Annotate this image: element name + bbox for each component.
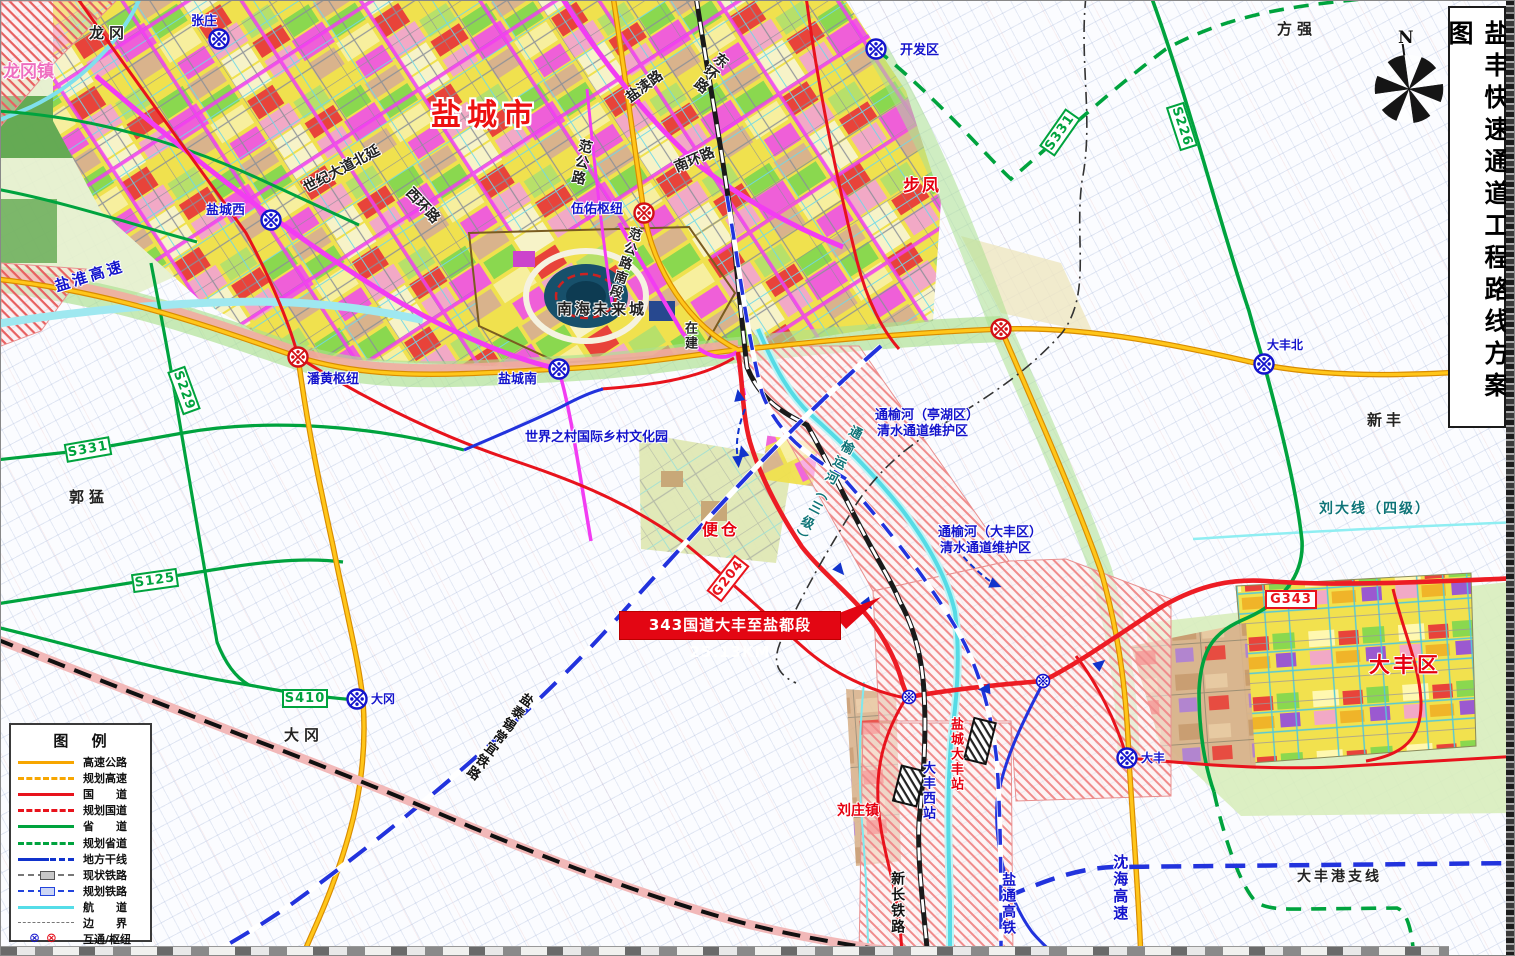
legend-label: 地方干线 (83, 851, 127, 867)
zone-label-tongyu-dafeng-2: 清水通道维护区 (940, 542, 1031, 557)
legend-row-planned-railway: 规划铁路 (11, 883, 150, 899)
legend-row-planned-expressway: 规划高速 (11, 770, 150, 786)
rail-label-dafenggang-branch: 大丰港支线 (1297, 869, 1382, 885)
legend-row-boundary: 边 界 (11, 915, 150, 931)
compass-north-label: N (1398, 29, 1414, 49)
map-title-block: 盐丰快速通道工程路线方案图 (1448, 6, 1506, 428)
legend-swatch-interchange-icons: ⊗⊗ (18, 934, 74, 944)
area-label-world-village: 世界之村国际乡村文化园 (525, 431, 668, 446)
shield-g343: G343 (1265, 590, 1317, 609)
legend-row-local-trunk: 地方干线 (11, 851, 150, 867)
legend-row-provincial-road: 省 道 (11, 818, 150, 834)
station-label-dafeng-west: 大丰西站 (919, 761, 934, 821)
legend-swatch-boundary (18, 918, 74, 928)
map-edge-strip (1, 946, 1449, 956)
map-graphic (1, 1, 1515, 956)
legend-row-planned-national-road: 规划国道 (11, 802, 150, 818)
station-label-yancheng-dafeng: 盐城大丰站 (947, 717, 962, 792)
area-label-nanhai: 南海未来城 (557, 301, 647, 318)
interchange-icon: ⊗ (29, 931, 46, 946)
dafeng-urban-area (1131, 573, 1515, 816)
zone-label-tongyu-dafeng-1: 通榆河（大丰区） (938, 526, 1042, 541)
legend-swatch-planned-provincial-road (18, 838, 74, 848)
ic-label-kaifaqu: 开发区 (900, 44, 939, 59)
rail-label-xinchang: 新长铁路 (889, 871, 905, 935)
town-label-bufeng: 步凤 (903, 177, 941, 197)
legend-label: 边 界 (83, 915, 127, 931)
legend-row-interchange: ⊗⊗ 互通/枢纽 (11, 931, 150, 947)
town-label-longgang-town: 龙冈镇 (3, 63, 54, 83)
town-label-fangqiang: 方强 (1277, 21, 1317, 38)
city-label-yancheng: 盐城市 (431, 99, 539, 134)
legend-label: 规划铁路 (83, 883, 127, 899)
town-label-longgang: 龙冈 (89, 25, 129, 42)
legend-label: 互通/枢纽 (83, 931, 131, 947)
legend-title: 图 例 (19, 730, 150, 751)
shield-s410: S410 (282, 689, 328, 708)
zone-label-tongyu-tinghu-2: 清水通道维护区 (877, 425, 968, 440)
legend-label: 省 道 (83, 818, 127, 834)
hub-icon: ⊗ (46, 931, 63, 946)
town-label-guomeng: 郭猛 (69, 489, 109, 506)
rail-label-yantong: 盐通高铁 (1000, 872, 1016, 936)
ic-label-zhangzhuang: 张庄 (191, 15, 217, 30)
legend-swatch-existing-railway (18, 870, 74, 880)
ic-label-dafeng: 大丰 (1141, 752, 1165, 766)
ic-label-yancheng-west: 盐城西 (206, 204, 245, 219)
expwy-label-shenhai: 沈海高速 (1111, 854, 1128, 922)
ic-label-dafeng-north: 大丰北 (1267, 339, 1303, 353)
label-under-construction: 在建 (681, 321, 696, 351)
legend-row-national-road: 国 道 (11, 786, 150, 802)
town-label-xinfeng: 新丰 (1367, 412, 1405, 429)
decorative-border-strip (1506, 1, 1515, 956)
map-canvas: 盐城市 大丰区 龙冈 龙冈镇 张庄 盐城西 伍佑枢纽 潘黄枢纽 盐城南 开发区 … (0, 0, 1515, 956)
district-label-dafeng: 大丰区 (1369, 653, 1441, 677)
legend-swatch-provincial-road (18, 821, 74, 831)
legend-row-planned-provincial-road: 规划省道 (11, 834, 150, 850)
legend-swatch-national-road (18, 789, 74, 799)
legend-swatch-planned-national-road (18, 805, 74, 815)
legend-row-expressway: 高速公路 (11, 754, 150, 770)
legend-swatch-planned-expressway (18, 773, 74, 783)
road-label-liuda-line: 刘大线（四级） (1319, 501, 1431, 517)
legend-label: 国 道 (83, 786, 127, 802)
legend-label: 规划高速 (83, 770, 127, 786)
legend-swatch-planned-railway (18, 886, 74, 896)
legend-label: 规划省道 (83, 835, 127, 851)
ic-label-wuyou-hub: 伍佑枢纽 (571, 203, 623, 218)
legend-swatch-expressway (18, 757, 74, 767)
legend-label: 航 道 (83, 899, 127, 915)
urban-zones-layer (1, 1, 1515, 866)
legend-row-existing-railway: 现状铁路 (11, 867, 150, 883)
legend-label: 高速公路 (83, 754, 127, 770)
zone-label-tongyu-tinghu-1: 通榆河（亭湖区） (875, 409, 979, 424)
compass-rose-icon (1369, 39, 1447, 128)
ic-label-yancheng-south: 盐城南 (498, 373, 537, 388)
legend-row-waterway: 航 道 (11, 899, 150, 915)
route-callout: 343国道大丰至盐都段 25.13KM (619, 611, 841, 640)
legend-label: 现状铁路 (83, 867, 127, 883)
legend-label: 规划国道 (83, 802, 127, 818)
legend-swatch-local-trunk (18, 854, 74, 864)
town-label-dagang: 大冈 (284, 727, 324, 744)
map-title: 盐丰快速通道工程路线方案图 (1441, 20, 1513, 426)
town-label-biancang: 便仓 (702, 521, 740, 539)
ic-label-panhuang-hub: 潘黄枢纽 (307, 373, 359, 388)
ic-label-dagang: 大冈 (371, 693, 395, 707)
town-label-liuzhuang: 刘庄镇 (837, 803, 879, 819)
legend-panel: 图 例 高速公路 规划高速 国 道 规划国道 省 道 规划省道 地方干线 现状铁… (9, 723, 152, 942)
legend-swatch-waterway (18, 902, 74, 912)
